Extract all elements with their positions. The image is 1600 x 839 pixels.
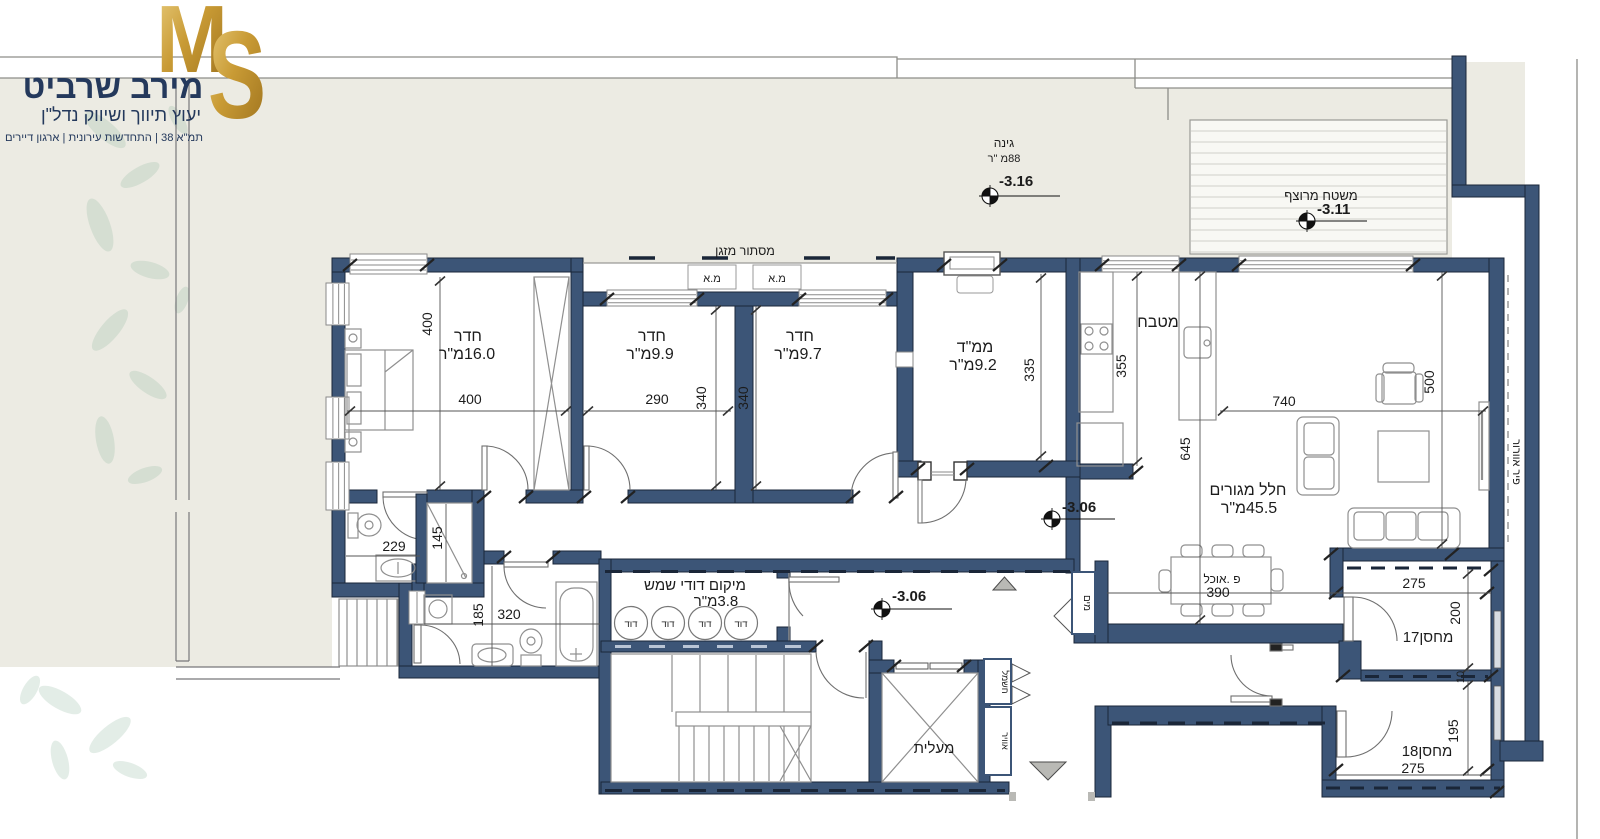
svg-text:3.8מ"ר: 3.8מ"ר <box>694 593 739 610</box>
svg-text:400: 400 <box>458 391 482 407</box>
svg-text:מחסן17: מחסן17 <box>1403 629 1454 646</box>
svg-text:275: 275 <box>1401 760 1425 776</box>
svg-text:200: 200 <box>1447 601 1463 625</box>
svg-text:-3.06: -3.06 <box>1062 499 1096 516</box>
svg-text:מ.א: מ.א <box>768 273 786 285</box>
svg-text:פיר אוורור: פיר אוורור <box>1510 439 1522 485</box>
svg-text:-3.11: -3.11 <box>1317 201 1350 218</box>
svg-text:תמ"א 38 | התחדשות עירונית | אר: תמ"א 38 | התחדשות עירונית | ארגון דיירים <box>5 132 203 144</box>
svg-text:16.0מ"ר: 16.0מ"ר <box>439 346 495 363</box>
svg-text:דוד: דוד <box>662 619 675 630</box>
svg-text:340: 340 <box>735 386 751 410</box>
svg-text:מחסן18: מחסן18 <box>1402 743 1453 760</box>
svg-text:195: 195 <box>1445 719 1461 743</box>
svg-text:חדר: חדר <box>786 328 814 345</box>
svg-text:S: S <box>208 7 266 145</box>
svg-text:9.9מ"ר: 9.9מ"ר <box>626 346 674 363</box>
svg-text:290: 290 <box>645 391 669 407</box>
svg-text:275: 275 <box>1402 575 1426 591</box>
svg-text:מיקום דודי שמש: מיקום דודי שמש <box>644 577 746 594</box>
svg-text:משטח מרוצף: משטח מרוצף <box>1284 188 1357 203</box>
svg-text:מירב שרביט: מירב שרביט <box>23 68 204 105</box>
svg-text:מים: מים <box>1081 595 1092 611</box>
svg-text:מטבח: מטבח <box>1137 314 1179 331</box>
svg-text:229: 229 <box>382 538 406 554</box>
svg-text:335: 335 <box>1021 358 1037 382</box>
svg-text:חדר: חדר <box>638 328 666 345</box>
svg-text:645: 645 <box>1177 437 1193 461</box>
svg-text:45.5מ"ר: 45.5מ"ר <box>1221 500 1277 517</box>
svg-text:מסתור מזגן: מסתור מזגן <box>715 244 775 258</box>
svg-text:יעוץ תיווך ושיווק נדל"ן: יעוץ תיווך ושיווק נדל"ן <box>41 105 201 125</box>
svg-text:340: 340 <box>693 386 709 410</box>
svg-text:740: 740 <box>1272 393 1296 409</box>
svg-text:אוויר: אוויר <box>1000 732 1010 750</box>
svg-text:9.7מ"ר: 9.7מ"ר <box>774 346 822 363</box>
svg-text:חדר: חדר <box>454 328 482 345</box>
svg-text:185: 185 <box>470 603 486 627</box>
svg-text:דוד: דוד <box>699 619 712 630</box>
svg-text:88מ "ר: 88מ "ר <box>988 153 1021 165</box>
svg-text:גינה: גינה <box>994 136 1014 150</box>
svg-text:145: 145 <box>429 526 445 550</box>
svg-text:חשמל: חשמל <box>1000 670 1010 693</box>
svg-text:400: 400 <box>419 312 435 336</box>
svg-text:דוד: דוד <box>735 619 748 630</box>
svg-text:-3.16: -3.16 <box>999 173 1033 190</box>
svg-text:320: 320 <box>497 606 521 622</box>
svg-text:מ.א: מ.א <box>703 273 721 285</box>
svg-text:-3.06: -3.06 <box>892 588 926 605</box>
svg-text:9.2מ"ר: 9.2מ"ר <box>949 357 997 374</box>
svg-text:ממ"ד: ממ"ד <box>957 339 994 356</box>
svg-text:500: 500 <box>1421 370 1437 394</box>
svg-text:מעלית: מעלית <box>914 740 955 757</box>
svg-text:355: 355 <box>1113 354 1129 378</box>
svg-text:חלל מגורים: חלל מגורים <box>1210 481 1287 499</box>
svg-text:390: 390 <box>1206 584 1230 600</box>
svg-text:10: 10 <box>1455 671 1467 683</box>
svg-text:דוד: דוד <box>625 619 638 630</box>
